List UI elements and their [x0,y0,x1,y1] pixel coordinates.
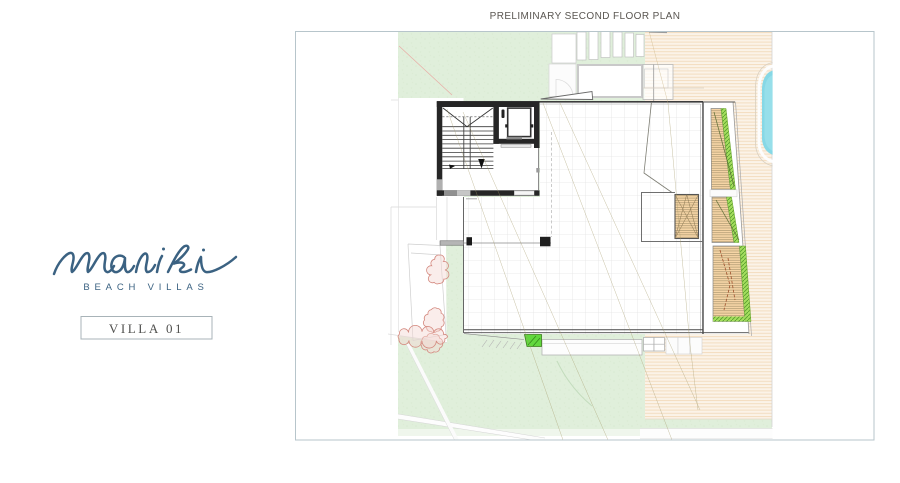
svg-text:BEACH VILLAS: BEACH VILLAS [83,282,208,293]
svg-text:VILLA 01: VILLA 01 [109,321,184,336]
svg-text:PRELIMINARY SECOND FLOOR PLAN: PRELIMINARY SECOND FLOOR PLAN [490,11,681,22]
